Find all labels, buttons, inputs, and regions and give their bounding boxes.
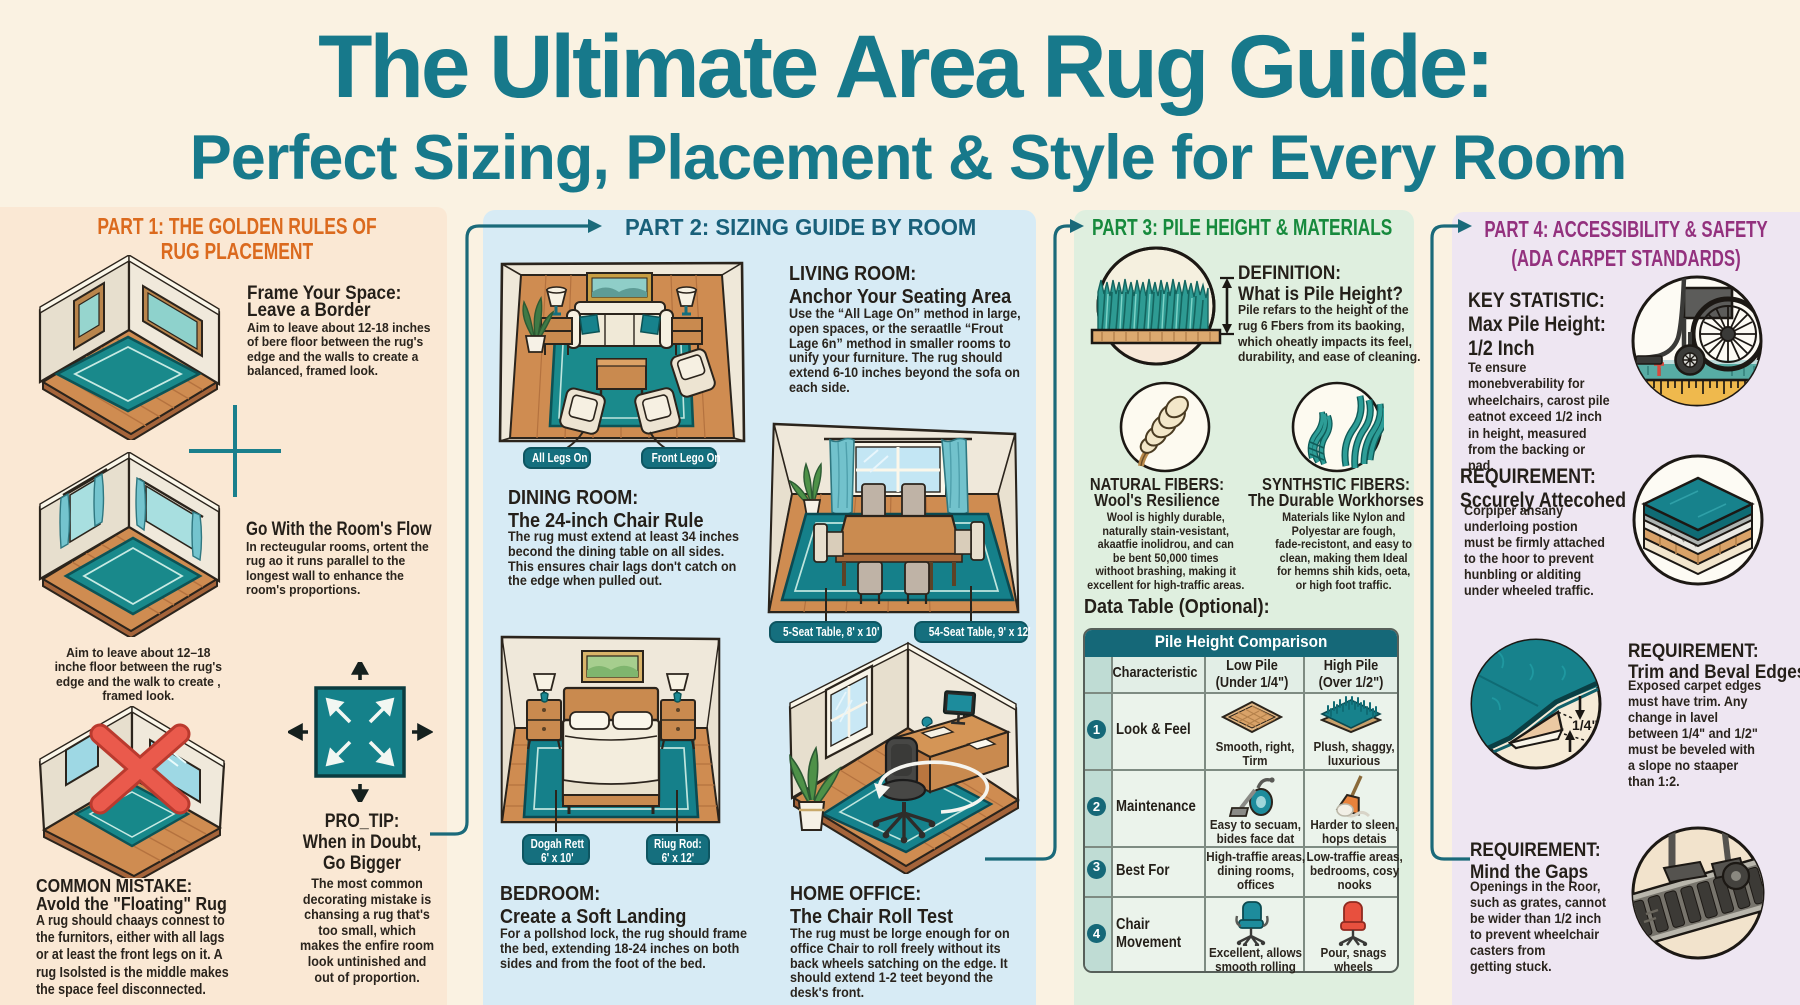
svg-text:1/4": 1/4"	[1572, 717, 1598, 733]
